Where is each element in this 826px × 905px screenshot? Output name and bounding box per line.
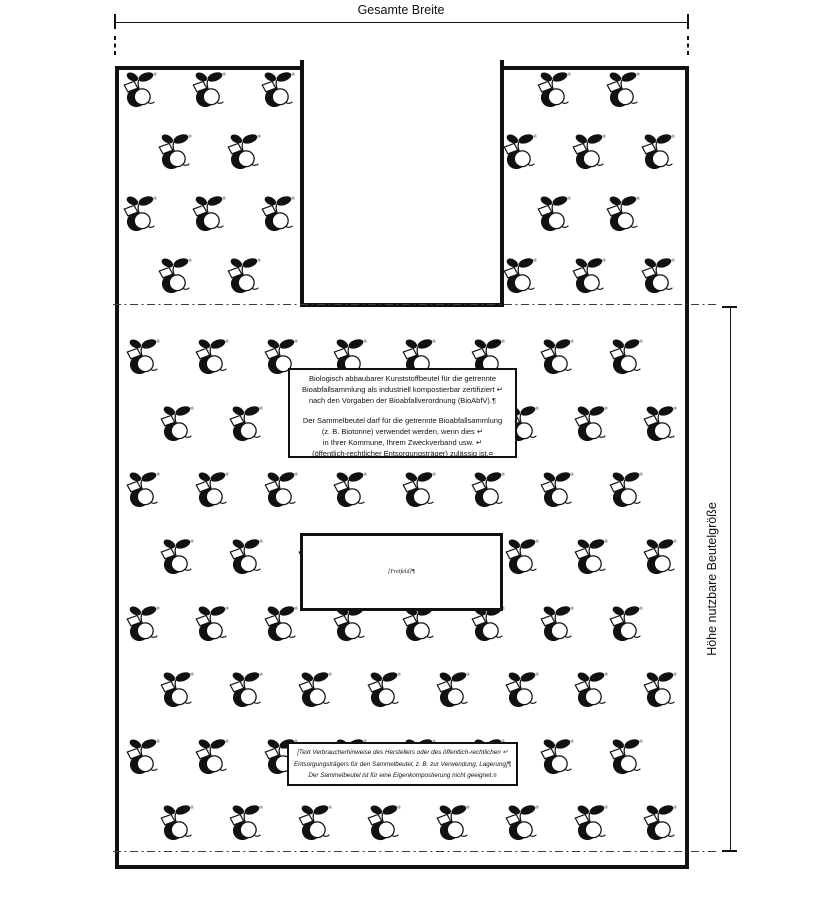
width-dimension-line bbox=[115, 22, 688, 24]
certification-paragraph-2: Der Sammelbeutel darf für die getrennte … bbox=[290, 415, 515, 459]
height-dimension-tick-top bbox=[722, 306, 737, 308]
extension-line-left bbox=[114, 36, 116, 58]
top-fold-line bbox=[113, 304, 718, 305]
certification-text-box: Biologisch abbaubarer Kunststoffbeutel f… bbox=[288, 368, 517, 458]
bag-technical-drawing: Gesamte Breite Höhe nutzbare Beutelgröße… bbox=[0, 0, 826, 905]
certification-paragraph-1: Biologisch abbaubarer Kunststoffbeutel f… bbox=[290, 373, 515, 406]
certification-line: in Ihrer Kommune, Ihrem Zweckverband usw… bbox=[290, 437, 515, 448]
certification-line: (z. B. Biotonne) verwendet werden, wenn … bbox=[290, 426, 515, 437]
freifeld-placeholder-text: [Freifeld]¶ bbox=[388, 569, 415, 575]
width-dimension-tick-left bbox=[114, 14, 116, 29]
certification-line: (öffentlich-rechtlicher Entsorgungsträge… bbox=[290, 448, 515, 459]
certification-line: Biologisch abbaubarer Kunststoffbeutel f… bbox=[290, 373, 515, 384]
consumer-note-line: Entsorgungsträgers für den Sammelbeutel,… bbox=[289, 759, 516, 771]
width-dimension-tick-right bbox=[687, 14, 689, 29]
height-dimension-tick-bottom bbox=[722, 850, 737, 852]
width-dimension-label: Gesamte Breite bbox=[301, 3, 501, 17]
bottom-weld-line bbox=[113, 851, 718, 852]
consumer-note-line: Der Sammelbeutel ist für eine Eigenkompo… bbox=[289, 770, 516, 782]
height-dimension-label: Höhe nutzbare Beutelgröße bbox=[705, 499, 719, 659]
consumer-note-line: [Text Verbraucherhinweise des Hersteller… bbox=[289, 747, 516, 759]
certification-line: Bioabfallsammlung als industriell kompos… bbox=[290, 384, 515, 395]
bag-handle-notch bbox=[300, 60, 504, 307]
certification-line: Der Sammelbeutel darf für die getrennte … bbox=[290, 415, 515, 426]
height-dimension-line bbox=[730, 307, 732, 851]
certification-line: nach den Vorgaben der Bioabfallverordnun… bbox=[290, 395, 515, 406]
extension-line-right bbox=[687, 36, 689, 58]
freifeld-placeholder-box: [Freifeld]¶ bbox=[300, 533, 503, 611]
consumer-note-box: [Text Verbraucherhinweise des Hersteller… bbox=[287, 742, 518, 786]
